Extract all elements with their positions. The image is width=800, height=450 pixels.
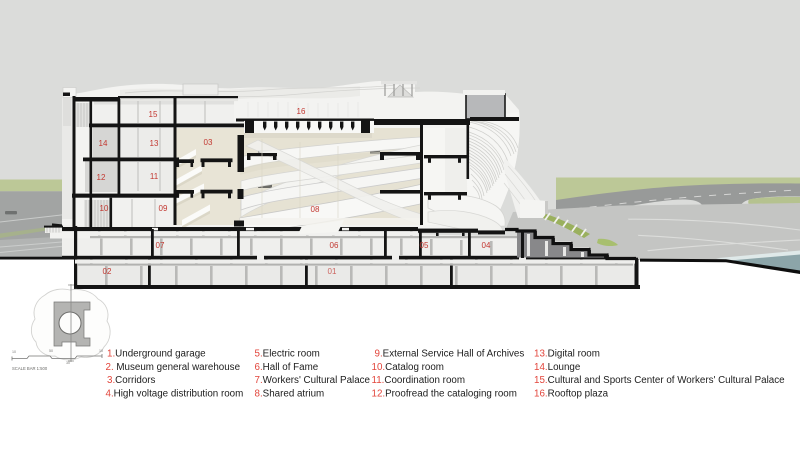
svg-text:08: 08 <box>311 205 320 214</box>
svg-text:16: 16 <box>297 107 306 116</box>
svg-text:07: 07 <box>156 241 165 250</box>
svg-text:8.Shared atrium: 8.Shared atrium <box>255 389 325 400</box>
svg-text:05: 05 <box>420 241 429 250</box>
svg-text:02: 02 <box>103 267 112 276</box>
svg-text:4.High voltage distribution ro: 4.High voltage distribution room <box>106 389 244 400</box>
svg-text:04: 04 <box>482 241 491 250</box>
svg-text:30: 30 <box>66 361 70 365</box>
svg-text:13: 13 <box>150 139 159 148</box>
svg-text:10: 10 <box>100 204 109 213</box>
svg-text:10.Catalog room: 10.Catalog room <box>372 362 444 373</box>
svg-text:10: 10 <box>99 349 103 353</box>
svg-text:10: 10 <box>12 350 16 354</box>
svg-text:01: 01 <box>328 267 337 276</box>
svg-text:12: 12 <box>97 173 106 182</box>
svg-text:11.Coordination room: 11.Coordination room <box>372 375 466 386</box>
svg-text:06: 06 <box>330 241 339 250</box>
svg-text:14.Lounge: 14.Lounge <box>534 362 581 373</box>
svg-text:7.Workers' Cultural Palace: 7.Workers' Cultural Palace <box>255 375 371 386</box>
svg-text:03: 03 <box>204 138 213 147</box>
svg-text:11: 11 <box>150 172 159 181</box>
svg-text:09: 09 <box>159 204 168 213</box>
svg-text:9.External Service Hall of Arc: 9.External Service Hall of Archives <box>375 349 525 360</box>
svg-text:1.Underground garage: 1.Underground garage <box>107 349 206 360</box>
svg-text:3.Corridors: 3.Corridors <box>107 375 156 386</box>
svg-text:14: 14 <box>99 139 108 148</box>
svg-text:15: 15 <box>149 110 158 119</box>
svg-text:15.Cultural and Sports Center: 15.Cultural and Sports Center of Workers… <box>534 375 785 386</box>
svg-text:6.Hall of Fame: 6.Hall of Fame <box>255 362 319 373</box>
svg-text:13.Digital room: 13.Digital room <box>534 349 600 360</box>
svg-text:SCALE BAR 1:500: SCALE BAR 1:500 <box>12 366 48 371</box>
svg-text:5.Electric room: 5.Electric room <box>255 349 320 360</box>
svg-text:12.Proofread the cataloging ro: 12.Proofread the cataloging room <box>372 389 517 400</box>
svg-text:16.Rooftop plaza: 16.Rooftop plaza <box>534 389 609 400</box>
svg-text:50: 50 <box>49 349 53 353</box>
svg-text:2. Museum general warehouse: 2. Museum general warehouse <box>106 362 241 373</box>
